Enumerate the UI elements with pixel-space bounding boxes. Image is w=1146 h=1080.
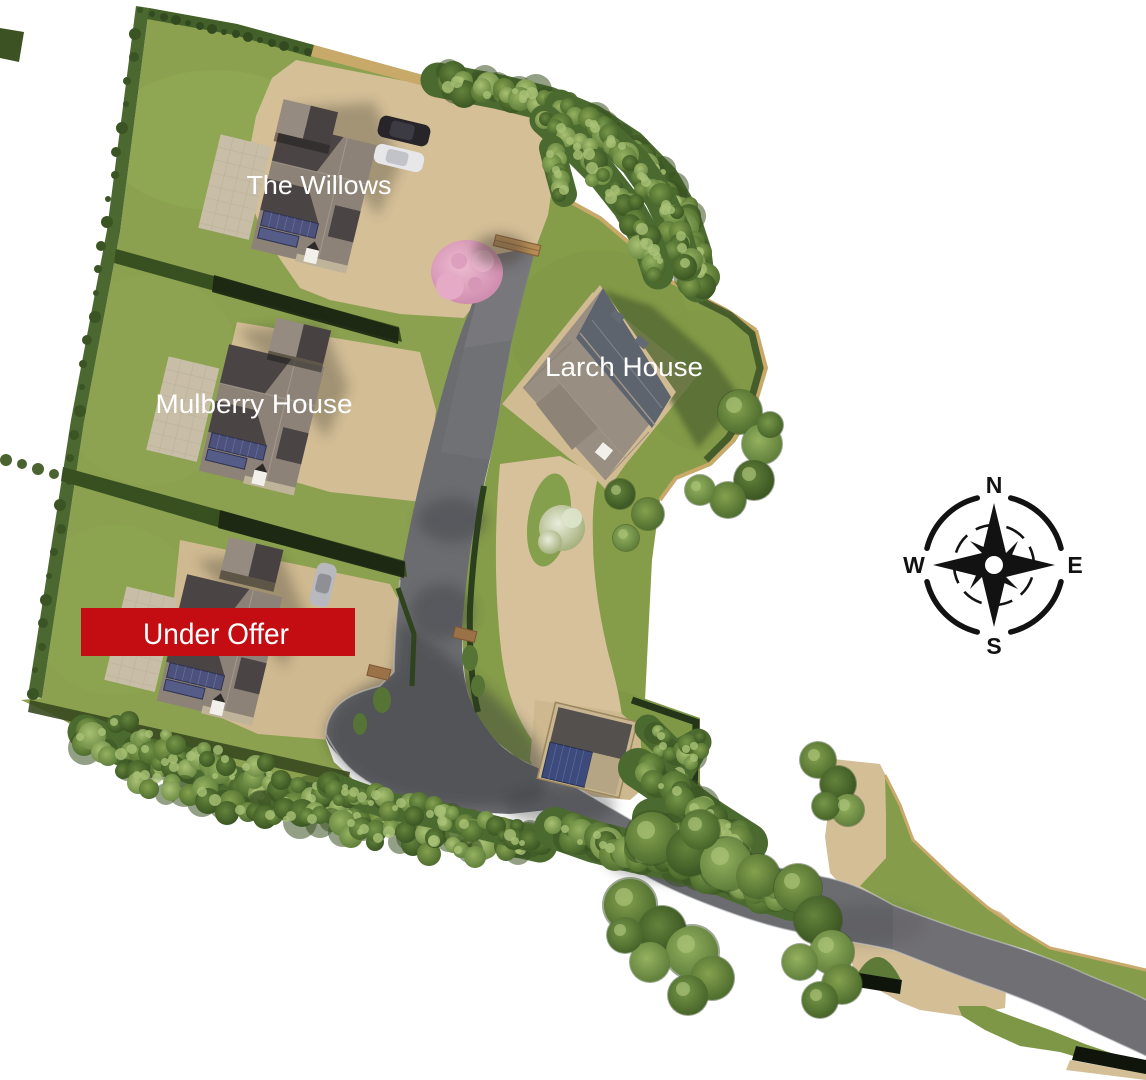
svg-text:The Willows: The Willows: [247, 170, 392, 200]
svg-text:N: N: [986, 472, 1003, 498]
svg-text:E: E: [1067, 552, 1082, 578]
svg-text:Mulberry House: Mulberry House: [156, 389, 353, 419]
svg-text:W: W: [903, 552, 925, 578]
svg-text:Larch House: Larch House: [545, 352, 703, 382]
svg-text:Under Offer: Under Offer: [143, 618, 289, 651]
svg-text:S: S: [986, 633, 1001, 659]
